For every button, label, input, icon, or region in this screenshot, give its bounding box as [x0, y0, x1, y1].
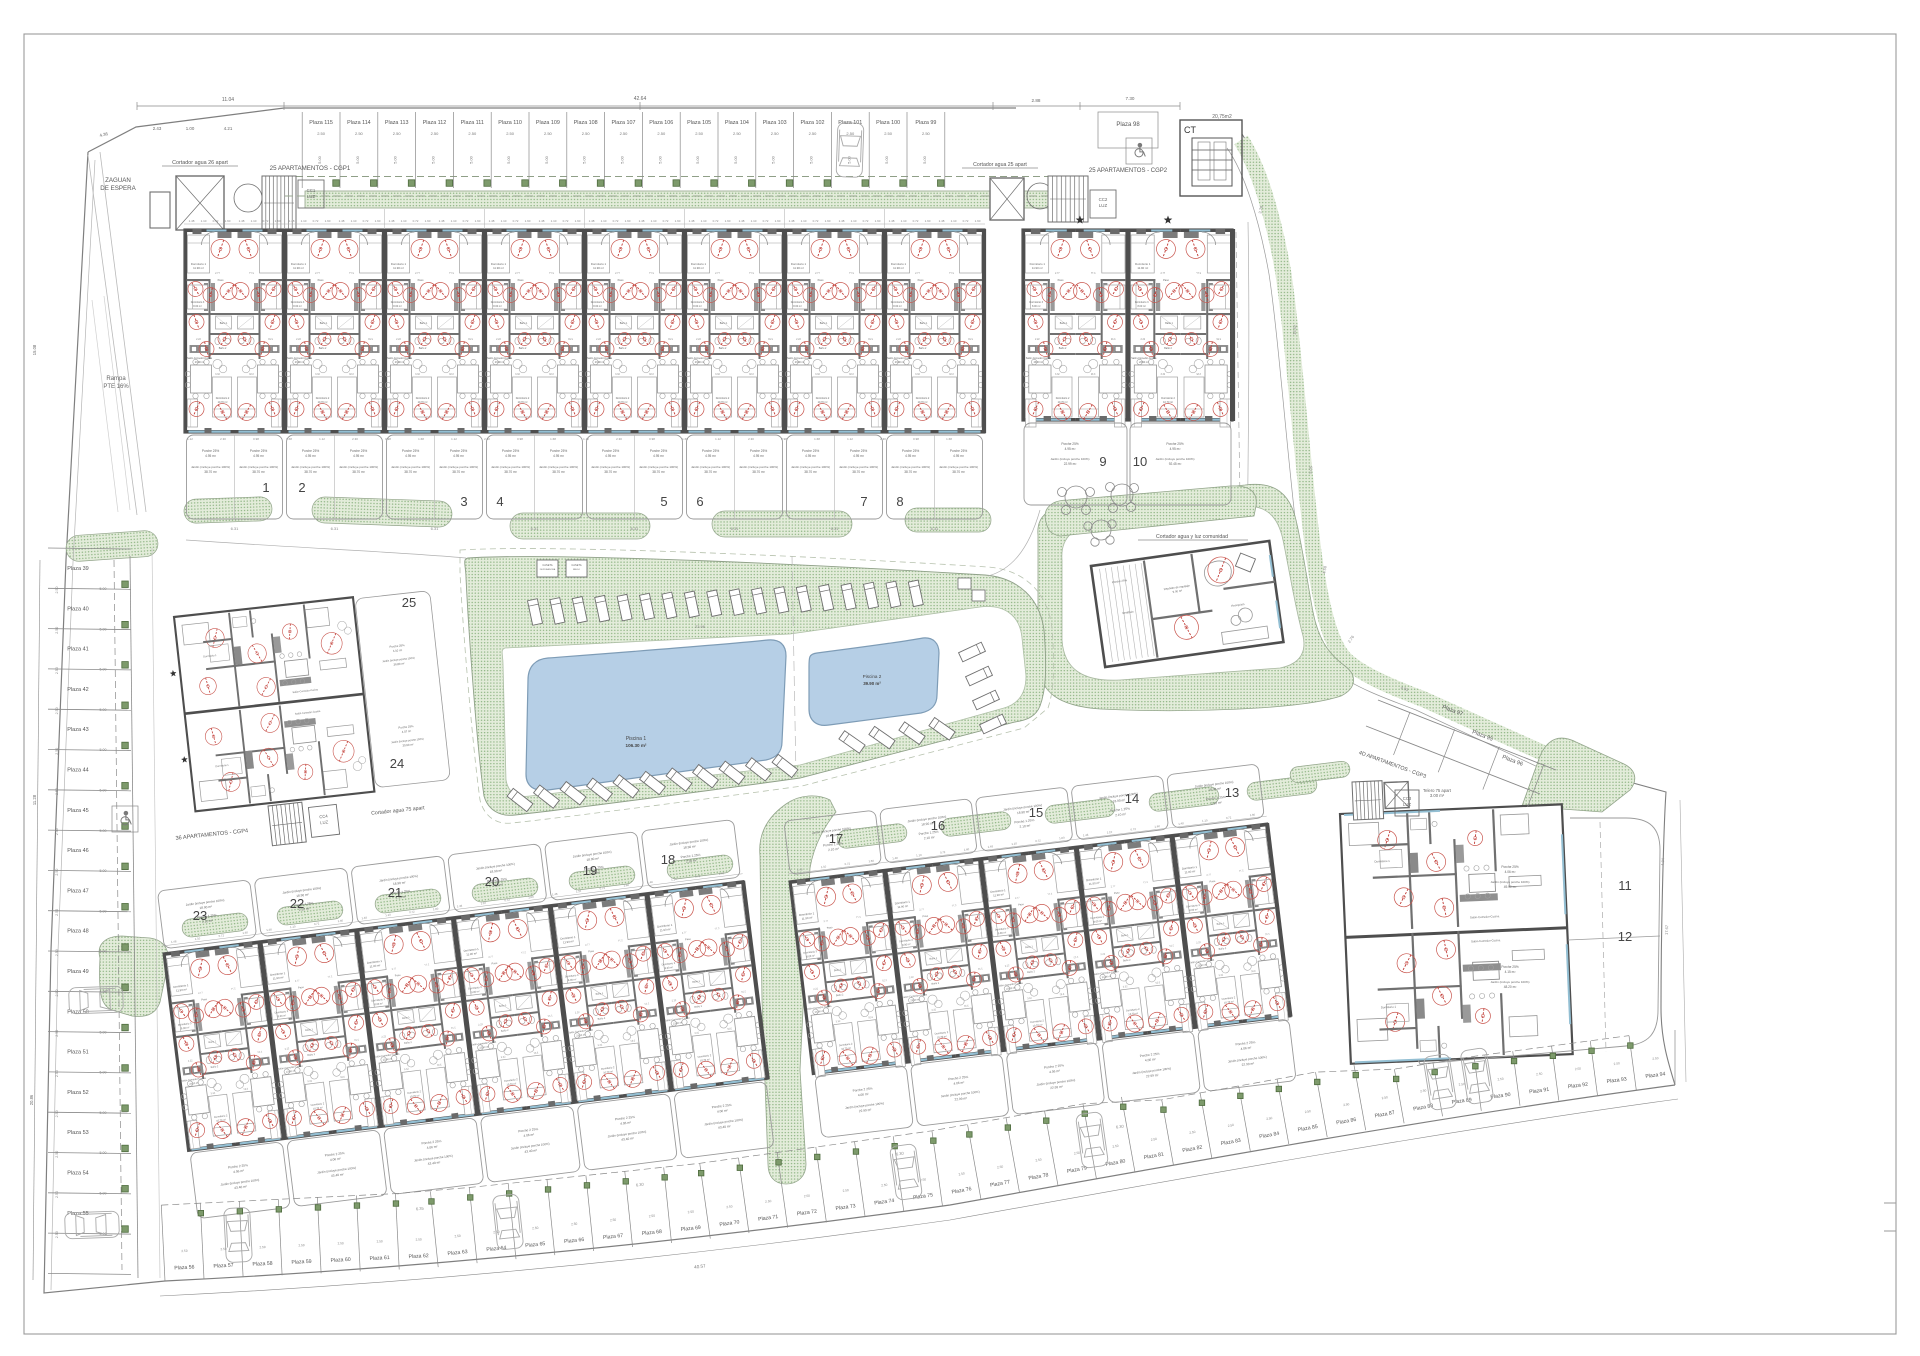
svg-text:Baño 1: Baño 1 — [620, 322, 628, 325]
svg-text:92.45 m²: 92.45 m² — [1169, 462, 1182, 466]
svg-text:25 APARTAMENTOS - CGP2: 25 APARTAMENTOS - CGP2 — [1089, 168, 1168, 174]
svg-text:2.50: 2.50 — [55, 1151, 59, 1158]
svg-text:12: 12 — [1618, 929, 1632, 944]
svg-text:1.60: 1.60 — [975, 219, 981, 223]
svg-text:2.77: 2.77 — [349, 272, 354, 275]
svg-text:16: 16 — [931, 818, 945, 833]
svg-text:Plaza 111: Plaza 111 — [461, 120, 484, 126]
svg-text:2.22: 2.22 — [568, 338, 573, 341]
svg-text:Plaza 42: Plaza 42 — [67, 687, 88, 693]
svg-text:11.90 m²: 11.90 m² — [493, 266, 504, 270]
svg-text:23.90 m²: 23.90 m² — [795, 361, 805, 364]
svg-text:Porche 25%: Porche 25% — [302, 449, 320, 453]
svg-text:2.77: 2.77 — [549, 272, 554, 275]
svg-text:2.50: 2.50 — [55, 667, 59, 674]
svg-text:2.50: 2.50 — [733, 131, 742, 136]
svg-text:15.08: 15.08 — [32, 344, 37, 355]
svg-text:2.22: 2.22 — [796, 338, 801, 341]
svg-text:6.31: 6.31 — [731, 526, 740, 531]
svg-text:1.48: 1.48 — [987, 844, 993, 849]
svg-text:1.60: 1.60 — [433, 907, 439, 912]
svg-text:1.10: 1.10 — [651, 219, 657, 223]
svg-text:0.72: 0.72 — [263, 219, 269, 223]
svg-text:Plaza 100: Plaza 100 — [876, 120, 900, 126]
svg-text:Plaza 45: Plaza 45 — [67, 808, 88, 814]
svg-text:1.68: 1.68 — [550, 437, 556, 441]
svg-text:25: 25 — [402, 595, 416, 610]
svg-text:Plaza 103: Plaza 103 — [763, 120, 787, 126]
svg-text:23.90 m²: 23.90 m² — [695, 361, 705, 364]
svg-text:Salón-Comedor-Cocina: Salón-Comedor-Cocina — [187, 357, 213, 360]
svg-text:0.72: 0.72 — [763, 219, 769, 223]
svg-text:0.72: 0.72 — [463, 219, 469, 223]
svg-text:2.22: 2.22 — [668, 338, 673, 341]
svg-text:Porche 25%: Porche 25% — [1061, 442, 1079, 446]
svg-text:Jardín (incluye porche 100%): Jardín (incluye porche 100%) — [1490, 980, 1529, 984]
svg-text:23.90 m²: 23.90 m² — [395, 361, 405, 364]
svg-text:LUZ: LUZ — [1403, 802, 1411, 807]
svg-text:1.60: 1.60 — [623, 883, 629, 888]
svg-text:5: 5 — [660, 494, 667, 509]
svg-text:5.00: 5.00 — [100, 1111, 107, 1115]
svg-text:2.50: 2.50 — [544, 131, 553, 136]
svg-text:10.70 m²: 10.70 m² — [318, 401, 328, 404]
svg-text:Baño 1: Baño 1 — [820, 322, 828, 325]
svg-text:2.22: 2.22 — [868, 338, 873, 341]
svg-text:LUZ: LUZ — [307, 194, 316, 199]
svg-text:2.50: 2.50 — [1613, 1061, 1620, 1066]
svg-text:Plaza 115: Plaza 115 — [309, 120, 333, 126]
svg-text:38.70 m²: 38.70 m² — [652, 470, 665, 474]
svg-text:6: 6 — [696, 494, 703, 509]
svg-text:1.48: 1.48 — [489, 219, 495, 223]
svg-text:1.68: 1.68 — [814, 437, 820, 441]
svg-text:42.64: 42.64 — [634, 96, 647, 102]
svg-text:Dormitorio 1: Dormitorio 1 — [1381, 1005, 1397, 1010]
svg-text:2.77: 2.77 — [715, 272, 720, 275]
svg-text:Baño 2: Baño 2 — [619, 347, 627, 350]
svg-text:2.22: 2.22 — [768, 338, 773, 341]
svg-text:Plaza 105: Plaza 105 — [687, 120, 711, 126]
svg-text:Plaza 62: Plaza 62 — [408, 1253, 429, 1260]
svg-text:Cortador agua 26 apart: Cortador agua 26 apart — [172, 160, 228, 166]
svg-text:Dormitorio 3: Dormitorio 3 — [591, 301, 605, 304]
svg-text:Jardín (incluye porche 100%): Jardín (incluye porche 100%) — [339, 465, 378, 469]
svg-text:CT: CT — [1184, 125, 1196, 135]
svg-text:Porche 25%: Porche 25% — [350, 449, 368, 453]
svg-text:3: 3 — [460, 494, 467, 509]
svg-text:38.70 m²: 38.70 m² — [552, 470, 565, 474]
svg-text:0.72: 0.72 — [813, 219, 819, 223]
svg-text:2.30: 2.30 — [352, 437, 358, 441]
svg-text:2.50: 2.50 — [55, 1231, 59, 1238]
svg-text:Plaza 41: Plaza 41 — [67, 647, 88, 653]
svg-text:2.50: 2.50 — [506, 131, 515, 136]
svg-text:Dormitorio 2: Dormitorio 2 — [916, 397, 930, 400]
svg-text:0.72: 0.72 — [613, 219, 619, 223]
svg-text:20.86: 20.86 — [29, 1094, 34, 1105]
svg-text:38.70 m²: 38.70 m² — [352, 470, 365, 474]
svg-text:Jardín (incluye porche 100%): Jardín (incluye porche 100%) — [739, 465, 778, 469]
svg-text:Jardín (incluye porche 100%): Jardín (incluye porche 100%) — [1155, 457, 1194, 461]
svg-text:Paso: Paso — [718, 279, 724, 282]
svg-text:Baño 2: Baño 2 — [319, 347, 327, 350]
svg-text:Plaza 112: Plaza 112 — [423, 120, 447, 126]
svg-text:Jardín (incluye porche 100%): Jardín (incluye porche 100%) — [791, 465, 830, 469]
svg-text:23.90 m²: 23.90 m² — [1034, 361, 1044, 364]
svg-text:2.50: 2.50 — [532, 1226, 539, 1231]
svg-text:Porche 25%: Porche 25% — [602, 449, 620, 453]
svg-text:1.60: 1.60 — [675, 219, 681, 223]
svg-text:Plaza 61: Plaza 61 — [369, 1255, 390, 1262]
svg-text:5.00: 5.00 — [847, 156, 851, 163]
svg-text:48.20 m²: 48.20 m² — [1504, 985, 1517, 989]
svg-text:5.00: 5.00 — [658, 156, 662, 163]
svg-text:Rampa: Rampa — [106, 376, 126, 382]
svg-text:1.60: 1.60 — [718, 871, 724, 876]
svg-text:Salón-Comedor-Cocina: Salón-Comedor-Cocina — [487, 357, 513, 360]
svg-text:0.72: 0.72 — [1226, 815, 1232, 820]
svg-text:10.70 m²: 10.70 m² — [218, 401, 228, 404]
svg-text:Plaza 113: Plaza 113 — [385, 120, 409, 126]
svg-text:1.48: 1.48 — [171, 939, 177, 944]
svg-text:Baño 2: Baño 2 — [819, 347, 827, 350]
svg-text:0.98: 0.98 — [649, 437, 655, 441]
svg-text:24: 24 — [390, 756, 404, 771]
svg-text:4.95 m²: 4.95 m² — [653, 454, 664, 458]
svg-text:5.00: 5.00 — [100, 1071, 107, 1075]
svg-text:Baño 1: Baño 1 — [1165, 322, 1173, 325]
svg-text:2.77: 2.77 — [649, 272, 654, 275]
svg-text:2.30: 2.30 — [748, 437, 754, 441]
svg-text:1.10: 1.10 — [451, 219, 457, 223]
svg-text:1.12: 1.12 — [187, 437, 193, 441]
svg-text:5.00: 5.00 — [318, 156, 322, 163]
svg-text:Plaza 104: Plaza 104 — [725, 120, 749, 126]
svg-text:3.32: 3.32 — [549, 373, 554, 376]
svg-text:Baño 2: Baño 2 — [1059, 347, 1067, 350]
svg-text:1.68: 1.68 — [418, 437, 424, 441]
svg-text:2.22: 2.22 — [268, 338, 273, 341]
svg-text:1.10: 1.10 — [501, 219, 507, 223]
svg-text:Baño 1: Baño 1 — [220, 322, 228, 325]
svg-text:1.10: 1.10 — [251, 219, 257, 223]
svg-text:5.00: 5.00 — [621, 156, 625, 163]
svg-text:2.22: 2.22 — [968, 338, 973, 341]
svg-text:1.10: 1.10 — [401, 219, 407, 223]
svg-text:3.32: 3.32 — [749, 373, 754, 376]
svg-text:1.48: 1.48 — [289, 219, 295, 223]
svg-text:LUZ: LUZ — [320, 819, 329, 825]
svg-text:Porche 25%: Porche 25% — [1501, 865, 1519, 869]
svg-text:1.10: 1.10 — [1107, 830, 1113, 835]
svg-text:4.21: 4.21 — [224, 126, 233, 131]
svg-text:5.00: 5.00 — [432, 156, 436, 163]
svg-text:1.60: 1.60 — [625, 219, 631, 223]
svg-text:2.22: 2.22 — [596, 338, 601, 341]
svg-text:2.50: 2.50 — [376, 1239, 383, 1243]
svg-text:Jardín (incluye porche 100%): Jardín (incluye porche 100%) — [1050, 457, 1089, 461]
svg-text:4.95 m²: 4.95 m² — [953, 454, 964, 458]
svg-text:38.70 m²: 38.70 m² — [452, 470, 465, 474]
svg-text:6.31: 6.31 — [931, 526, 940, 531]
svg-text:11.90 m²: 11.90 m² — [293, 266, 304, 270]
svg-text:6.31: 6.31 — [231, 526, 240, 531]
svg-text:4.95 m²: 4.95 m² — [253, 454, 264, 458]
svg-text:LUZ: LUZ — [1099, 203, 1108, 208]
svg-text:Porche 25%: Porche 25% — [402, 449, 420, 453]
svg-text:Jardín (incluye porche 100%): Jardín (incluye porche 100%) — [939, 465, 978, 469]
svg-text:RIEGO: RIEGO — [573, 569, 580, 571]
svg-text:0.72: 0.72 — [313, 219, 319, 223]
svg-text:4.06 m²: 4.06 m² — [1505, 870, 1516, 874]
svg-text:Baño 2: Baño 2 — [719, 347, 727, 350]
svg-text:Jardín (incluye porche 100%): Jardín (incluye porche 100%) — [691, 465, 730, 469]
svg-text:Plaza 102: Plaza 102 — [801, 120, 825, 126]
svg-text:Plaza 46: Plaza 46 — [67, 848, 88, 854]
svg-text:2.50: 2.50 — [695, 131, 704, 136]
svg-text:Porche 25%: Porche 25% — [1501, 965, 1519, 969]
svg-text:3.32: 3.32 — [449, 373, 454, 376]
svg-text:2.50: 2.50 — [55, 587, 59, 594]
svg-text:2.22: 2.22 — [496, 338, 501, 341]
svg-text:CASETA: CASETA — [571, 563, 581, 567]
svg-text:8.00 m²: 8.00 m² — [493, 305, 502, 308]
svg-text:3.32: 3.32 — [1055, 373, 1060, 376]
svg-text:5.00: 5.00 — [696, 156, 700, 163]
svg-text:Plaza 49: Plaza 49 — [67, 969, 88, 975]
svg-text:11.90 m²: 11.90 m² — [693, 266, 704, 270]
svg-text:Baño 2: Baño 2 — [919, 347, 927, 350]
svg-text:2.22: 2.22 — [296, 338, 301, 341]
svg-text:5.00: 5.00 — [100, 708, 107, 712]
svg-text:1.48: 1.48 — [339, 219, 345, 223]
svg-text:0.98: 0.98 — [517, 437, 523, 441]
svg-text:10.70 m²: 10.70 m² — [1058, 401, 1068, 404]
svg-text:5.00: 5.00 — [810, 156, 814, 163]
svg-text:1.12: 1.12 — [847, 437, 853, 441]
svg-text:1.10: 1.10 — [671, 877, 677, 882]
svg-text:Dormitorio 3: Dormitorio 3 — [1135, 301, 1149, 304]
svg-text:CC3: CC3 — [1403, 796, 1412, 801]
svg-text:2.77: 2.77 — [815, 272, 820, 275]
svg-text:1.48: 1.48 — [361, 915, 367, 920]
svg-text:2.77: 2.77 — [449, 272, 454, 275]
svg-text:2.77: 2.77 — [249, 272, 254, 275]
svg-text:1.10: 1.10 — [290, 924, 296, 929]
svg-text:1.10: 1.10 — [1011, 841, 1017, 846]
svg-text:11.04: 11.04 — [222, 97, 234, 103]
svg-text:2.50: 2.50 — [687, 1210, 694, 1215]
svg-text:2: 2 — [298, 480, 305, 495]
svg-text:2.50: 2.50 — [1536, 1072, 1543, 1077]
svg-text:0.72: 0.72 — [913, 219, 919, 223]
svg-text:1.10: 1.10 — [201, 219, 207, 223]
svg-text:6.31: 6.31 — [831, 526, 840, 531]
svg-text:Plaza 114: Plaza 114 — [347, 120, 371, 126]
svg-text:2.50: 2.50 — [922, 131, 931, 136]
svg-text:38.70 m²: 38.70 m² — [604, 470, 617, 474]
svg-text:Plaza 47: Plaza 47 — [67, 888, 88, 894]
svg-text:1.60: 1.60 — [775, 219, 781, 223]
svg-text:Porche 25%: Porche 25% — [550, 449, 568, 453]
svg-text:22.99 m²: 22.99 m² — [1064, 462, 1077, 466]
svg-text:2.50: 2.50 — [1458, 1082, 1465, 1087]
svg-text:7.30: 7.30 — [1126, 96, 1135, 101]
svg-text:1.12: 1.12 — [319, 437, 325, 441]
svg-text:0.72: 0.72 — [663, 219, 669, 223]
svg-text:Dormitorio 1: Dormitorio 1 — [1374, 859, 1390, 864]
svg-text:38.70 m²: 38.70 m² — [504, 470, 517, 474]
svg-text:8.00 m²: 8.00 m² — [793, 305, 802, 308]
svg-text:Plaza 107: Plaza 107 — [612, 120, 636, 126]
svg-text:Plaza 53: Plaza 53 — [67, 1130, 88, 1136]
svg-text:3.32: 3.32 — [249, 373, 254, 376]
svg-text:39.90 m²: 39.90 m² — [863, 681, 881, 686]
svg-text:2.77: 2.77 — [949, 272, 954, 275]
svg-text:Dormitorio 3: Dormitorio 3 — [791, 301, 805, 304]
svg-text:0.72: 0.72 — [695, 874, 701, 879]
svg-text:6.31: 6.31 — [331, 526, 340, 531]
svg-text:1.68: 1.68 — [286, 437, 292, 441]
svg-text:2.50: 2.50 — [55, 1030, 59, 1037]
svg-text:10.70 m²: 10.70 m² — [818, 401, 828, 404]
svg-text:6.31: 6.31 — [531, 526, 540, 531]
svg-text:Jardín (incluye porche 100%): Jardín (incluye porche 100%) — [591, 465, 630, 469]
svg-text:2.50: 2.50 — [393, 131, 402, 136]
svg-text:2.22: 2.22 — [1140, 338, 1145, 341]
svg-text:Paso: Paso — [318, 279, 324, 282]
svg-text:Baño 1: Baño 1 — [720, 322, 728, 325]
svg-text:Salón-Comedor-Cocina: Salón-Comedor-Cocina — [687, 357, 713, 360]
svg-text:11.90 m²: 11.90 m² — [1032, 266, 1043, 270]
svg-text:Baño 1: Baño 1 — [1060, 322, 1068, 325]
svg-text:5.00: 5.00 — [583, 156, 587, 163]
svg-text:Dormitorio 3: Dormitorio 3 — [291, 301, 305, 304]
svg-text:Plaza 40: Plaza 40 — [67, 606, 88, 612]
svg-text:Dormitorio 3: Dormitorio 3 — [391, 301, 405, 304]
svg-text:2.50: 2.50 — [1497, 1077, 1504, 1082]
svg-text:2.50: 2.50 — [610, 1218, 617, 1223]
svg-text:1.48: 1.48 — [797, 867, 803, 872]
svg-text:0.72: 0.72 — [863, 219, 869, 223]
svg-text:1.10: 1.10 — [821, 864, 827, 869]
svg-text:2.77: 2.77 — [515, 272, 520, 275]
svg-text:5.00: 5.00 — [469, 156, 473, 163]
svg-text:5.00: 5.00 — [734, 156, 738, 163]
svg-text:5.00: 5.00 — [100, 748, 107, 752]
svg-text:Jardín (incluye porche 100%): Jardín (incluye porche 100%) — [891, 465, 930, 469]
svg-text:1.60: 1.60 — [242, 930, 248, 935]
svg-text:1.10: 1.10 — [801, 219, 807, 223]
svg-text:Dormitorio 3: Dormitorio 3 — [891, 301, 905, 304]
svg-text:Dormitorio 2: Dormitorio 2 — [816, 397, 830, 400]
svg-text:0.72: 0.72 — [1035, 838, 1041, 843]
svg-text:1.10: 1.10 — [576, 889, 582, 894]
svg-text:1.48: 1.48 — [739, 219, 745, 223]
svg-text:1.12: 1.12 — [583, 437, 589, 441]
svg-text:11.90 m²: 11.90 m² — [593, 266, 604, 270]
svg-text:8.00 m²: 8.00 m² — [393, 305, 402, 308]
svg-text:1.60: 1.60 — [525, 219, 531, 223]
svg-text:2.50: 2.50 — [884, 131, 893, 136]
svg-text:1.60: 1.60 — [425, 219, 431, 223]
svg-text:1: 1 — [262, 480, 269, 495]
svg-text:1.68: 1.68 — [682, 437, 688, 441]
svg-text:11.90 m²: 11.90 m² — [893, 266, 904, 270]
svg-text:38.70 m²: 38.70 m² — [304, 470, 317, 474]
svg-text:2.22: 2.22 — [1216, 338, 1221, 341]
svg-text:1.00: 1.00 — [186, 126, 195, 131]
svg-text:Jardín (incluye porche 100%): Jardín (incluye porche 100%) — [391, 465, 430, 469]
svg-text:4.95 m²: 4.95 m² — [353, 454, 364, 458]
svg-text:2.50: 2.50 — [1652, 1056, 1659, 1061]
svg-text:Dormitorio 2: Dormitorio 2 — [716, 397, 730, 400]
svg-text:Salón-Comedor-Cocina: Salón-Comedor-Cocina — [387, 357, 413, 360]
svg-text:Porche 25%: Porche 25% — [802, 449, 820, 453]
svg-text:1.48: 1.48 — [789, 219, 795, 223]
svg-text:0.72: 0.72 — [1130, 827, 1136, 832]
svg-text:4.95 m²: 4.95 m² — [805, 454, 816, 458]
svg-text:0.72: 0.72 — [314, 921, 320, 926]
svg-text:2.50: 2.50 — [55, 788, 59, 795]
svg-text:5.00: 5.00 — [100, 1192, 107, 1196]
svg-text:Porche 25%: Porche 25% — [502, 449, 520, 453]
svg-text:0.72: 0.72 — [963, 219, 969, 223]
svg-text:2.50: 2.50 — [620, 131, 629, 136]
svg-text:11.90 m²: 11.90 m² — [793, 266, 804, 270]
svg-text:1.60: 1.60 — [925, 219, 931, 223]
svg-text:3.32: 3.32 — [215, 373, 220, 376]
svg-text:23.90 m²: 23.90 m² — [595, 361, 605, 364]
svg-text:2.88: 2.88 — [1032, 98, 1041, 103]
svg-text:5.00: 5.00 — [100, 1151, 107, 1155]
svg-text:0.72: 0.72 — [713, 219, 719, 223]
svg-text:6.31: 6.31 — [631, 526, 640, 531]
svg-text:Salón-Comedor-Cocina: Salón-Comedor-Cocina — [587, 357, 613, 360]
svg-text:Salón-Comedor-Cocina: Salón-Comedor-Cocina — [887, 357, 913, 360]
svg-text:2.77: 2.77 — [849, 272, 854, 275]
svg-text:0.72: 0.72 — [363, 219, 369, 223]
svg-text:2.77: 2.77 — [1055, 272, 1060, 275]
svg-text:2.50: 2.50 — [55, 1110, 59, 1117]
svg-text:1.10: 1.10 — [195, 936, 201, 941]
svg-text:3.00 m²: 3.00 m² — [1430, 793, 1445, 798]
svg-text:38.70 m²: 38.70 m² — [904, 470, 917, 474]
svg-text:1.60: 1.60 — [1154, 824, 1160, 829]
svg-text:Jardín (incluye porche 100%): Jardín (incluye porche 100%) — [439, 465, 478, 469]
svg-text:5.00: 5.00 — [507, 156, 511, 163]
svg-text:20: 20 — [485, 874, 499, 889]
svg-text:2.50: 2.50 — [55, 909, 59, 916]
svg-text:DEPURADORA: DEPURADORA — [540, 568, 556, 571]
svg-text:1.10: 1.10 — [916, 853, 922, 858]
svg-text:5.00: 5.00 — [356, 156, 360, 163]
svg-text:4.95 m²: 4.95 m² — [853, 454, 864, 458]
svg-text:2.50: 2.50 — [571, 1222, 578, 1227]
svg-text:Porche 25%: Porche 25% — [902, 449, 920, 453]
svg-text:Dormitorio 2: Dormitorio 2 — [216, 397, 230, 400]
svg-text:1.48: 1.48 — [639, 219, 645, 223]
svg-text:18: 18 — [661, 852, 675, 867]
svg-text:4.95 m²: 4.95 m² — [305, 454, 316, 458]
svg-text:23.90 m²: 23.90 m² — [295, 361, 305, 364]
svg-text:6.30: 6.30 — [896, 1150, 905, 1156]
svg-text:2.50: 2.50 — [1575, 1066, 1582, 1071]
svg-text:1.60: 1.60 — [575, 219, 581, 223]
svg-text:4.84: 4.84 — [1661, 858, 1665, 866]
svg-text:2.77: 2.77 — [415, 272, 420, 275]
